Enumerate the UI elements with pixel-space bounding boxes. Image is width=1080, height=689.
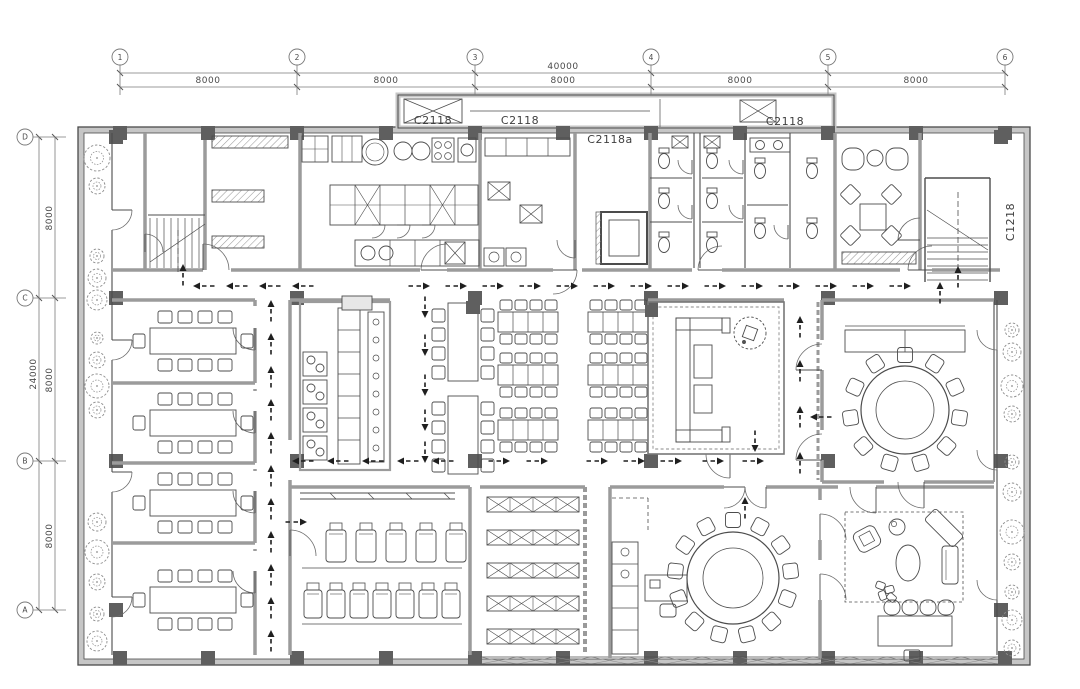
chair <box>178 359 192 371</box>
round-table <box>861 366 949 454</box>
chair <box>620 300 632 310</box>
chair <box>198 618 212 630</box>
circle <box>96 521 98 523</box>
shape <box>420 523 432 530</box>
arrowhead <box>423 283 430 290</box>
grid-bubble-left-D: D <box>17 129 66 145</box>
column <box>109 291 123 305</box>
door-swing <box>553 270 577 294</box>
circulation-arrow <box>526 458 548 465</box>
circulation-arrow <box>519 283 541 290</box>
chair <box>880 453 899 472</box>
circulation-arrow <box>362 458 384 465</box>
chair <box>133 334 145 348</box>
exterior-wall <box>78 127 1030 665</box>
furniture-layer <box>133 136 990 661</box>
door-swing <box>290 530 316 556</box>
chair <box>158 393 172 405</box>
door-swing <box>820 574 846 600</box>
arrowhead <box>497 283 504 290</box>
door-arc <box>112 210 132 230</box>
circle <box>316 364 324 372</box>
chair <box>218 618 232 630</box>
chair <box>590 334 602 344</box>
lounge-seat <box>442 583 460 618</box>
chair <box>605 353 617 363</box>
chair <box>620 353 632 363</box>
chair <box>432 421 445 434</box>
chair <box>178 311 192 323</box>
arrowhead <box>422 456 429 463</box>
arrowhead <box>180 264 187 271</box>
chair <box>198 311 212 323</box>
door-arc <box>706 454 730 478</box>
circle <box>1011 531 1013 533</box>
arrowhead <box>327 458 334 465</box>
dim-left-seg-3: 8000 <box>45 524 55 549</box>
shape <box>338 308 360 464</box>
circle <box>96 385 98 387</box>
chair <box>605 387 617 397</box>
chair <box>620 387 632 397</box>
door-arc <box>745 487 766 508</box>
circle <box>96 185 98 187</box>
chair <box>605 442 617 452</box>
crate-icon <box>672 136 688 148</box>
chair <box>545 300 557 310</box>
grid-bubble-label: 5 <box>826 53 831 62</box>
circulation-arrow <box>778 283 800 290</box>
lounge-seat <box>350 583 368 618</box>
column <box>994 603 1008 617</box>
lounge-seat <box>416 523 436 562</box>
arrowhead <box>503 458 510 465</box>
circle <box>379 246 393 260</box>
chair <box>590 300 602 310</box>
arrowhead <box>645 283 652 290</box>
toilet-bowl <box>807 164 818 179</box>
lounge-seat <box>419 583 437 618</box>
shape <box>707 232 717 237</box>
grid-bubble-label: B <box>22 457 27 466</box>
door-arc <box>372 225 385 238</box>
arrowhead <box>757 458 764 465</box>
dim-left-seg-1: 8000 <box>45 206 55 231</box>
circulation-arrow <box>259 283 281 290</box>
dining-cluster <box>588 353 648 397</box>
dining-cluster <box>498 408 558 452</box>
circle <box>96 157 98 159</box>
arrowhead <box>422 424 429 431</box>
column <box>290 651 304 665</box>
chair <box>158 570 172 582</box>
dim-left-seg-2: 8000 <box>45 368 55 393</box>
arrowhead <box>300 519 307 526</box>
arrowhead <box>756 283 763 290</box>
circulation-arrow <box>741 283 763 290</box>
shape <box>356 530 376 562</box>
circulation-arrow <box>268 564 275 586</box>
shape <box>650 580 660 588</box>
shape <box>386 530 406 562</box>
meeting-room-2 <box>133 393 253 453</box>
grid-bubble-label: 1 <box>118 53 123 62</box>
grid-bubble-top-5: 5 <box>820 49 836 95</box>
crate-icon <box>488 182 510 200</box>
column <box>821 126 835 140</box>
circle <box>373 337 379 343</box>
window-label-c2118a: C2118a <box>587 133 632 146</box>
circle <box>1011 351 1013 353</box>
shape <box>330 523 342 530</box>
chair <box>782 563 799 580</box>
arrowhead <box>937 282 944 289</box>
shape <box>78 127 1030 665</box>
shape <box>506 248 526 266</box>
shelving-room <box>487 497 579 644</box>
rug <box>845 512 963 602</box>
circle <box>435 153 442 160</box>
chair <box>924 353 945 374</box>
arrowhead <box>268 564 275 571</box>
circle <box>307 412 315 420</box>
chair <box>911 453 930 472</box>
circulation-arrow <box>268 432 275 454</box>
circle <box>366 143 384 161</box>
window-label-c1218: C1218 <box>1004 203 1017 241</box>
armchair <box>886 148 908 170</box>
door-arc <box>678 205 692 219</box>
side-table <box>889 519 905 535</box>
circle <box>489 252 499 262</box>
chair <box>635 442 647 452</box>
door-arc <box>290 530 316 556</box>
door-arc <box>678 160 692 174</box>
circle <box>461 144 473 156</box>
grid-bubble-label: 4 <box>649 53 654 62</box>
circulation-arrow <box>268 465 275 487</box>
circulation-arrow <box>268 498 275 520</box>
door-swing <box>397 225 410 238</box>
lounge-seat <box>373 583 391 618</box>
booth-desks <box>212 136 288 248</box>
shape <box>755 158 765 163</box>
chair <box>218 521 232 533</box>
circulation-arrow <box>702 458 724 465</box>
chair <box>605 300 617 310</box>
tree-icon <box>1003 343 1021 361</box>
door-swing <box>557 240 575 258</box>
toilet-icon <box>659 188 670 209</box>
shape <box>303 380 327 404</box>
arrowhead <box>571 283 578 290</box>
shape <box>330 583 342 590</box>
shape <box>722 427 730 442</box>
chair <box>500 300 512 310</box>
tree-icon <box>1005 323 1019 337</box>
column <box>994 130 1008 144</box>
round-table <box>687 532 779 624</box>
toilet-icon <box>807 158 818 179</box>
chair <box>951 409 968 426</box>
sofa <box>676 430 722 442</box>
shape <box>722 318 730 333</box>
shape <box>859 531 875 546</box>
circulation-arrow <box>797 360 804 382</box>
toilet-icon <box>707 148 718 169</box>
door-swing <box>112 472 132 492</box>
circulation-arrow <box>630 283 652 290</box>
circle <box>743 341 746 344</box>
door-arc <box>112 472 132 492</box>
shape <box>303 352 327 376</box>
arrowhead <box>541 458 548 465</box>
crate-icon <box>704 136 720 148</box>
door-swing <box>372 225 385 238</box>
grid-bubble-top-4: 4 <box>643 49 659 95</box>
shape <box>659 232 669 237</box>
circle <box>96 299 98 301</box>
arrowhead <box>193 283 200 290</box>
door-arc <box>112 340 132 360</box>
column <box>644 651 658 665</box>
grid-bubble-label: 6 <box>1003 53 1008 62</box>
chair <box>675 535 696 556</box>
chair <box>241 416 253 430</box>
arrowhead <box>742 497 749 504</box>
shape <box>807 218 817 223</box>
tree-icon <box>88 269 106 287</box>
chair <box>481 421 494 434</box>
shape <box>368 312 384 462</box>
chair <box>938 600 954 615</box>
shape <box>376 583 388 590</box>
column <box>379 126 393 140</box>
shape <box>659 148 669 153</box>
circle <box>876 381 934 439</box>
shape <box>485 138 570 156</box>
planting-layer <box>84 145 1024 656</box>
hatched-desk <box>212 236 264 248</box>
chair <box>605 408 617 418</box>
door-swing <box>774 225 788 239</box>
window-label-c2118-1: C2118 <box>414 114 452 127</box>
chair <box>133 416 145 430</box>
circle <box>307 356 315 364</box>
door-arc <box>729 160 743 174</box>
chair <box>133 496 145 510</box>
sofa <box>924 508 964 548</box>
grid-bubble-top-2: 2 <box>289 49 305 95</box>
chair <box>545 353 557 363</box>
window-label-c2118-3: C2118 <box>766 115 804 128</box>
circle <box>1011 385 1013 387</box>
staircase-west <box>148 215 205 272</box>
chair <box>590 353 602 363</box>
shape <box>422 583 434 590</box>
circle <box>756 141 765 150</box>
door-arc <box>422 225 435 238</box>
circle <box>96 409 98 411</box>
line <box>368 493 374 499</box>
chair <box>778 589 797 608</box>
shape <box>645 305 658 317</box>
arrowhead <box>717 458 724 465</box>
circle <box>316 420 324 428</box>
tree-icon <box>87 290 107 310</box>
circulation-arrow <box>593 283 615 290</box>
circulation-arrow <box>180 264 187 286</box>
toilet-icon <box>707 232 718 253</box>
circle <box>511 252 521 262</box>
arrowhead <box>422 389 429 396</box>
chair <box>515 300 527 310</box>
armchair <box>842 148 864 170</box>
chair <box>669 589 688 608</box>
seating-room-south <box>300 493 466 624</box>
chair <box>545 408 557 418</box>
coffee-table <box>694 345 712 378</box>
circle <box>435 142 442 149</box>
arrowhead <box>534 283 541 290</box>
sofa <box>942 546 958 584</box>
shape <box>399 583 411 590</box>
floor-plan-page: 40000 8000 8000 8000 8000 8000 24000 800… <box>0 0 1080 689</box>
shape <box>609 220 639 256</box>
shape <box>326 530 346 562</box>
shape <box>596 212 601 264</box>
sofa-room <box>645 302 784 454</box>
doors <box>112 160 997 617</box>
chair <box>241 593 253 607</box>
door-swing <box>678 160 692 174</box>
chair <box>481 309 494 322</box>
line <box>330 493 336 499</box>
line <box>406 493 412 499</box>
arrowhead <box>601 458 608 465</box>
long-table <box>150 328 236 354</box>
shape <box>707 148 717 153</box>
sofa <box>676 318 690 442</box>
chair <box>218 570 232 582</box>
column <box>113 651 127 665</box>
column <box>998 651 1012 665</box>
arrowhead <box>867 283 874 290</box>
arrowhead <box>268 498 275 505</box>
partition-walls <box>112 133 1000 658</box>
door-arc <box>820 574 846 600</box>
chair <box>178 393 192 405</box>
toilet-bowl <box>707 154 718 169</box>
storage-mid <box>484 138 570 266</box>
circle <box>361 246 375 260</box>
chair <box>545 387 557 397</box>
arrowhead <box>675 458 682 465</box>
toilet-bowl <box>755 224 766 239</box>
toilet-icon <box>707 188 718 209</box>
chair <box>178 618 192 630</box>
arrowhead <box>830 283 837 290</box>
circulation-arrow <box>268 399 275 421</box>
circulation-arrow <box>422 334 429 356</box>
chair <box>530 408 542 418</box>
door-arc <box>724 487 745 508</box>
circulation-arrow <box>797 406 804 428</box>
kitchen-north <box>302 136 479 266</box>
arrowhead <box>797 452 804 459</box>
shape <box>807 158 817 163</box>
door-swing <box>678 205 692 219</box>
chair <box>481 402 494 415</box>
door-swing <box>820 514 846 540</box>
hatched-desk <box>212 190 264 202</box>
chair <box>178 441 192 453</box>
chair <box>530 442 542 452</box>
circulation-arrow <box>268 366 275 388</box>
chair <box>842 409 859 426</box>
arrowhead <box>259 283 266 290</box>
long-dining-table-1 <box>432 303 494 381</box>
chair <box>198 521 212 533</box>
circle <box>373 409 379 415</box>
door-arc <box>397 225 410 238</box>
circle <box>1011 561 1013 563</box>
chair <box>515 442 527 452</box>
shape <box>450 523 462 530</box>
tree-icon <box>1002 610 1022 630</box>
door-arc <box>850 487 876 513</box>
toilet-icon <box>659 232 670 253</box>
circulation-arrow <box>797 452 804 474</box>
lounge-seat <box>304 583 322 618</box>
arrowhead <box>268 399 275 406</box>
crate-icon <box>520 205 542 223</box>
tree-icon <box>89 402 105 418</box>
chair <box>178 570 192 582</box>
door-arc <box>553 270 577 294</box>
chair <box>158 473 172 485</box>
arrowhead <box>904 283 911 290</box>
chair <box>198 441 212 453</box>
circle <box>307 440 315 448</box>
lounge-seat <box>386 523 406 562</box>
circle <box>373 355 379 361</box>
toilet-bowl <box>659 238 670 253</box>
chair <box>515 408 527 418</box>
column <box>379 651 393 665</box>
long-table <box>150 410 236 436</box>
door-arc <box>145 234 163 252</box>
chair <box>840 184 861 205</box>
circle <box>373 391 379 397</box>
circle <box>1011 491 1013 493</box>
circle <box>891 521 896 526</box>
chair <box>840 225 861 246</box>
shape <box>750 138 790 152</box>
circulation-arrow <box>889 283 911 290</box>
dining-table <box>878 616 952 646</box>
meeting-room-3 <box>133 473 253 533</box>
toilet-bowl <box>659 154 670 169</box>
circle <box>445 142 452 149</box>
door-arc <box>729 205 743 219</box>
arrowhead <box>793 283 800 290</box>
door-swing <box>698 246 722 270</box>
grid-bubble-top-1: 1 <box>112 49 128 95</box>
arrowhead <box>797 406 804 413</box>
arrowhead <box>422 349 429 356</box>
lounge-seat <box>327 583 345 618</box>
